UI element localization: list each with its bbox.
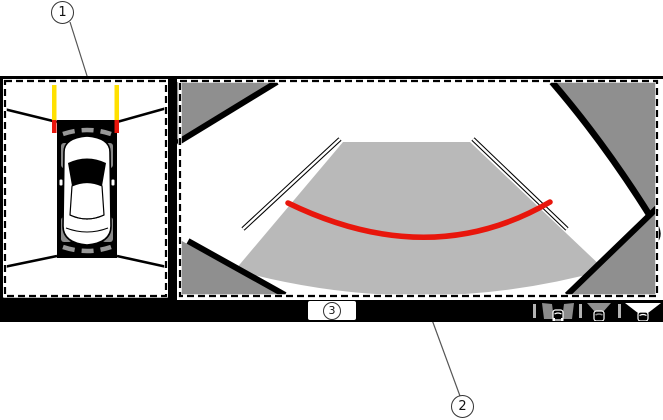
side-cameras-view-icon <box>540 302 576 321</box>
wide-rear-view-icon <box>624 302 662 321</box>
callout-3-box: 3 <box>308 301 356 320</box>
wide-rear-view-button[interactable] <box>624 302 662 321</box>
rear-view-icon <box>586 302 612 321</box>
monitor-screen: 3 <box>0 76 663 322</box>
birdseye-view-graphic <box>0 76 171 300</box>
callout-2: 2 <box>451 395 474 418</box>
manual-illustration: 1 2 <box>0 0 663 420</box>
side-cameras-view-button[interactable] <box>540 302 576 321</box>
rear-view-panel <box>170 76 663 300</box>
toolbar-separator <box>533 304 536 318</box>
toolbar-separator <box>618 304 621 318</box>
callout-3: 3 <box>323 302 341 320</box>
birdseye-view-panel <box>0 76 171 300</box>
bottom-control-bar: 3 <box>0 300 663 322</box>
callout-1: 1 <box>51 1 74 24</box>
rear-view-button[interactable] <box>586 302 612 321</box>
toolbar-separator <box>579 304 582 318</box>
rear-view-graphic <box>170 76 663 300</box>
birdseye-car-icon <box>59 136 115 245</box>
